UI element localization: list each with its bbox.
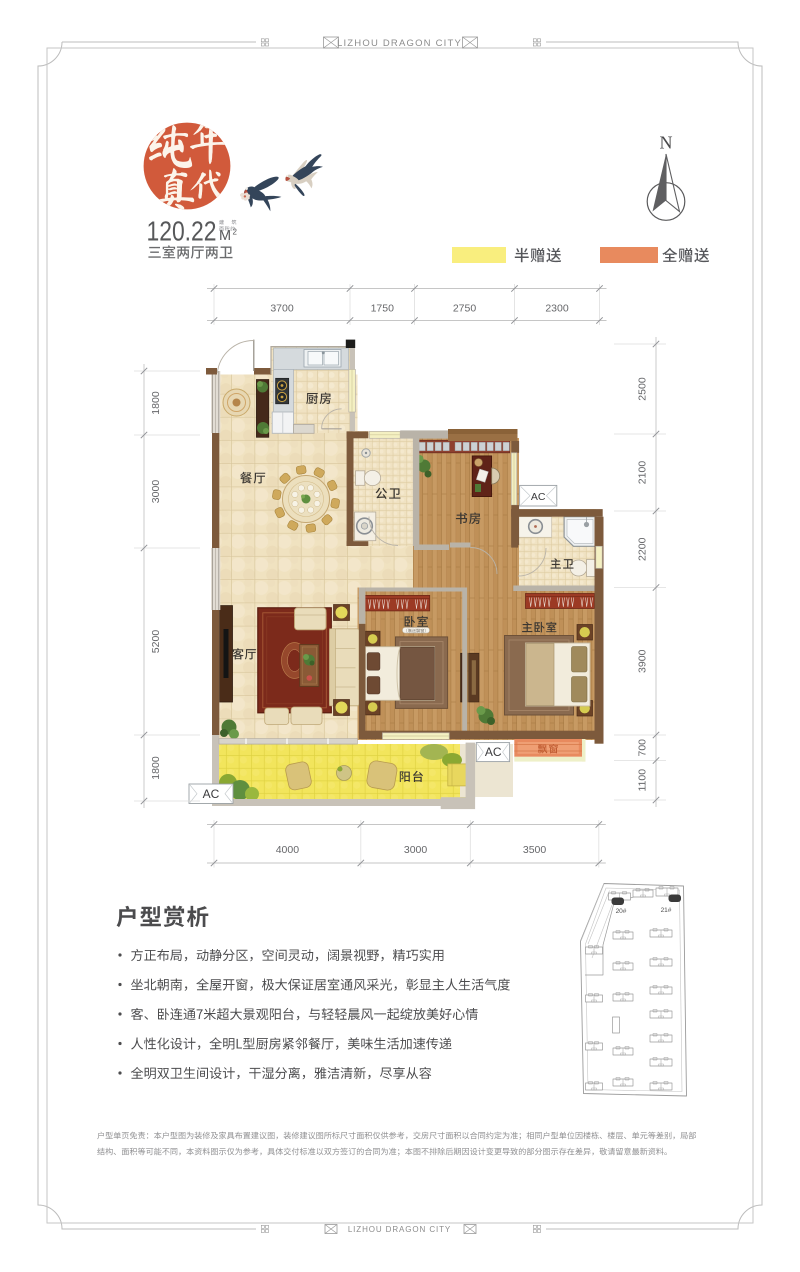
svg-text:4000: 4000 xyxy=(276,844,300,856)
svg-text:LIZHOU DRAGON CITY: LIZHOU DRAGON CITY xyxy=(337,38,462,49)
svg-text:2200: 2200 xyxy=(637,537,649,561)
svg-text:2300: 2300 xyxy=(545,303,569,315)
svg-text:2100: 2100 xyxy=(637,461,649,485)
svg-text:AC: AC xyxy=(203,787,220,801)
svg-text:1750: 1750 xyxy=(371,303,395,315)
svg-text:1800: 1800 xyxy=(150,756,162,780)
svg-text:1800: 1800 xyxy=(150,391,162,415)
svg-text:1100: 1100 xyxy=(637,769,649,792)
svg-text:21#: 21# xyxy=(661,907,672,914)
svg-text:LIZHOU DRAGON CITY: LIZHOU DRAGON CITY xyxy=(348,1225,451,1234)
svg-text:2750: 2750 xyxy=(453,303,477,315)
svg-text:N: N xyxy=(660,133,673,153)
svg-text:700: 700 xyxy=(637,739,649,757)
svg-text:AC: AC xyxy=(531,491,546,503)
svg-text:2500: 2500 xyxy=(637,377,649,401)
svg-text:3900: 3900 xyxy=(637,649,649,673)
svg-text:5200: 5200 xyxy=(150,630,162,654)
svg-text:3500: 3500 xyxy=(523,844,547,856)
svg-text:3000: 3000 xyxy=(150,480,162,504)
svg-text:20#: 20# xyxy=(616,908,627,915)
svg-text:3000: 3000 xyxy=(404,844,428,856)
svg-text:3700: 3700 xyxy=(270,303,294,315)
svg-text:120.22: 120.22 xyxy=(147,216,217,247)
svg-text:AC: AC xyxy=(485,745,502,759)
